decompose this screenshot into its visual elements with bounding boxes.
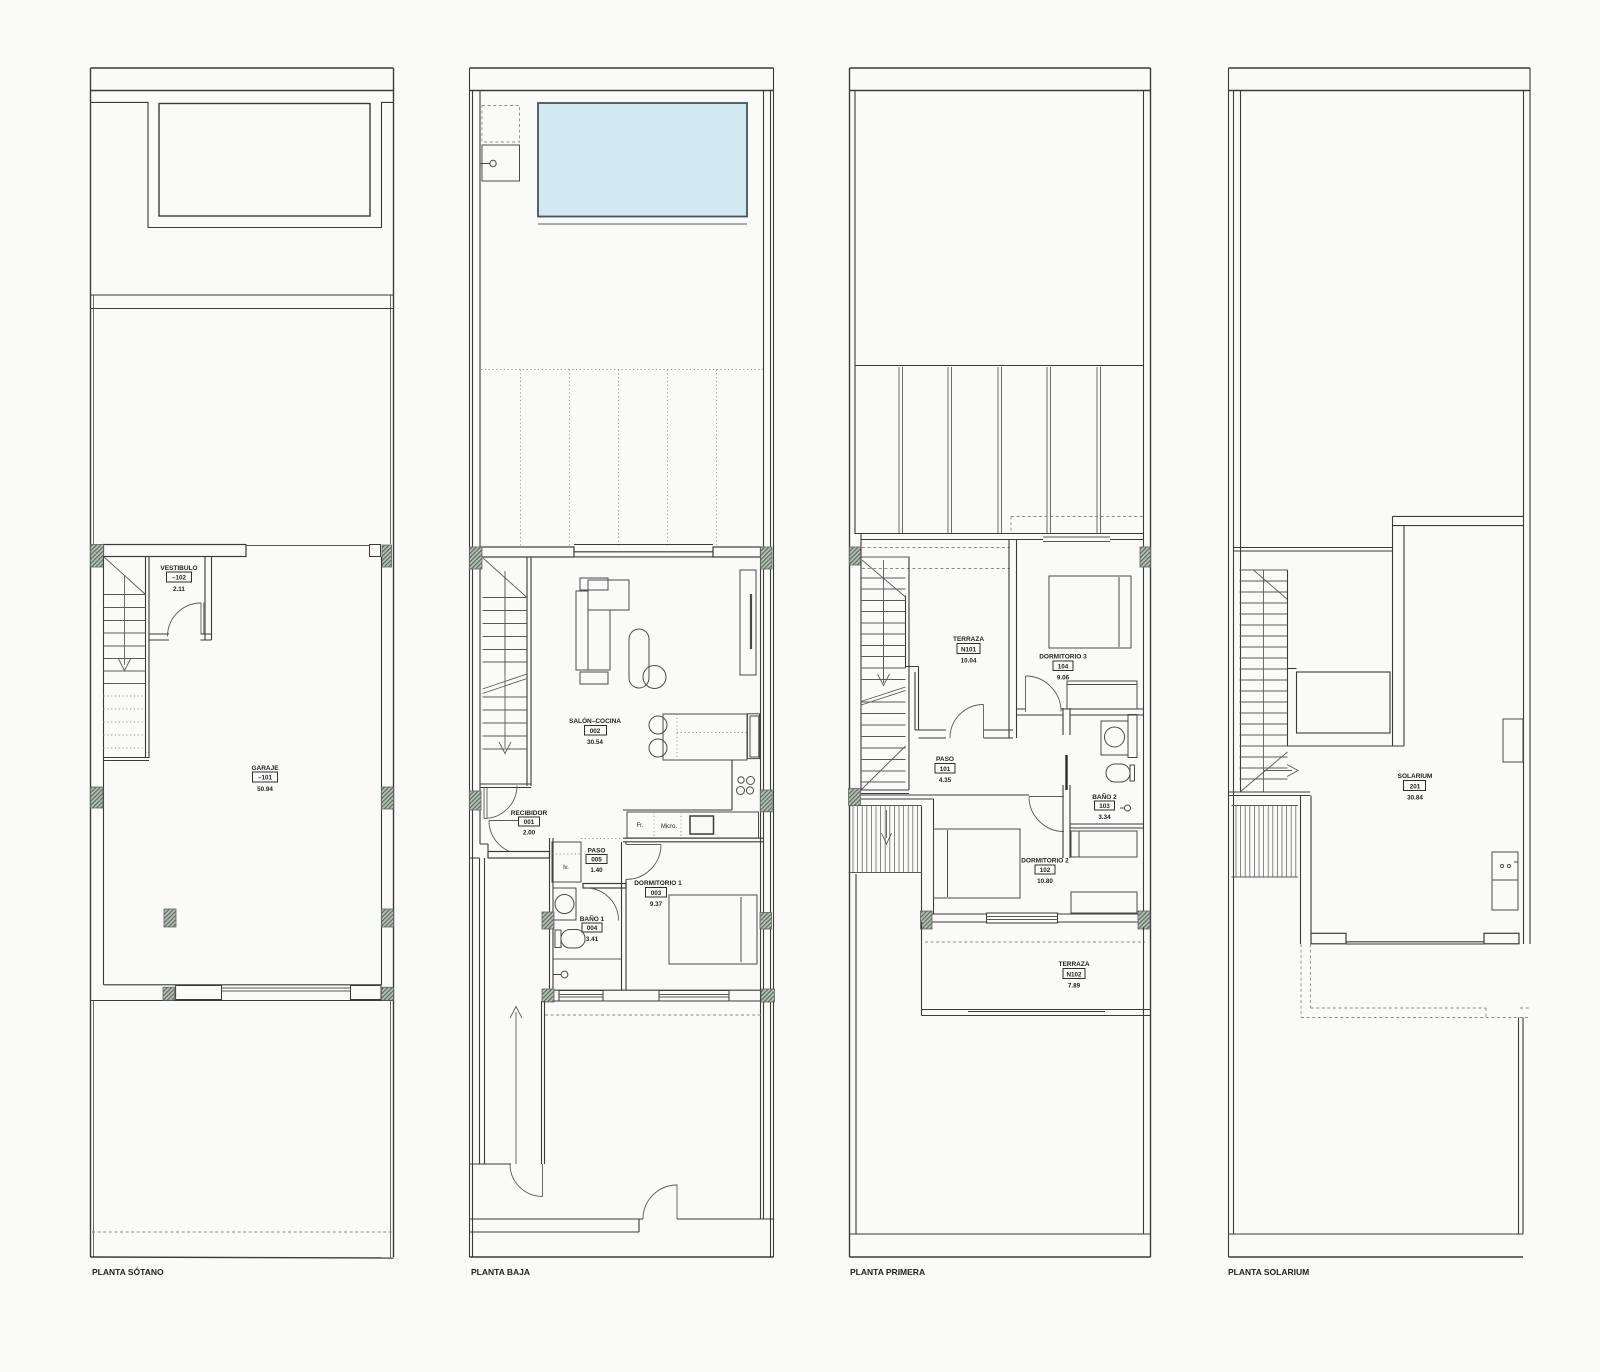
svg-text:PASO: PASO [588,848,606,855]
svg-text:002: 002 [590,728,601,735]
svg-text:2.00: 2.00 [523,830,536,837]
svg-text:Micro.: Micro. [661,824,678,830]
svg-text:2.11: 2.11 [173,586,185,593]
svg-text:103: 103 [1099,803,1110,810]
svg-text:50.94: 50.94 [257,786,273,793]
svg-text:101: 101 [940,766,951,773]
svg-text:30.84: 30.84 [1407,795,1423,802]
svg-text:SALÓN–COCINA: SALÓN–COCINA [569,716,621,725]
svg-text:BAÑO 2: BAÑO 2 [1092,792,1117,801]
svg-text:9.06: 9.06 [1057,675,1070,682]
svg-text:DORMITORIO 3: DORMITORIO 3 [1039,654,1087,661]
svg-text:104: 104 [1058,664,1069,671]
svg-text:3.41: 3.41 [586,936,599,943]
svg-text:PLANTA SOLARIUM: PLANTA SOLARIUM [1228,1267,1309,1277]
svg-text:GARAJE: GARAJE [251,765,279,772]
svg-text:005: 005 [591,857,602,864]
svg-text:TERRAZA: TERRAZA [953,636,984,643]
svg-text:201: 201 [1410,784,1421,791]
svg-text:PLANTA BAJA: PLANTA BAJA [471,1267,530,1277]
svg-text:TERRAZA: TERRAZA [1058,961,1089,968]
svg-text:1.40: 1.40 [590,867,603,874]
svg-text:Fr.: Fr. [637,823,644,829]
svg-text:VESTIBULO: VESTIBULO [160,565,197,572]
svg-text:003: 003 [651,890,662,897]
svg-text:PLANTA PRIMERA: PLANTA PRIMERA [850,1267,925,1277]
svg-text:–102: –102 [172,575,187,582]
svg-text:10.04: 10.04 [961,658,977,665]
svg-text:lv.: lv. [563,865,569,871]
svg-text:004: 004 [587,925,598,932]
svg-text:30.54: 30.54 [587,739,603,746]
svg-text:3.34: 3.34 [1098,814,1111,821]
svg-text:PLANTA SÓTANO: PLANTA SÓTANO [92,1266,164,1277]
svg-text:10.80: 10.80 [1037,878,1053,885]
svg-text:001: 001 [524,819,535,826]
svg-text:SOLARIUM: SOLARIUM [1398,773,1433,780]
svg-text:DORMITORIO 1: DORMITORIO 1 [634,880,682,887]
svg-text:N101: N101 [961,647,977,654]
svg-text:RECIBIDOR: RECIBIDOR [511,810,548,817]
svg-text:N102: N102 [1066,972,1082,979]
svg-text:PASO: PASO [936,756,954,763]
svg-text:4.35: 4.35 [939,777,952,784]
svg-text:DORMITORIO 2: DORMITORIO 2 [1021,858,1069,865]
svg-text:7.89: 7.89 [1068,983,1081,990]
svg-text:9.37: 9.37 [650,901,663,908]
svg-text:BAÑO 1: BAÑO 1 [580,914,605,923]
svg-text:–101: –101 [258,775,273,782]
svg-text:102: 102 [1040,867,1051,874]
